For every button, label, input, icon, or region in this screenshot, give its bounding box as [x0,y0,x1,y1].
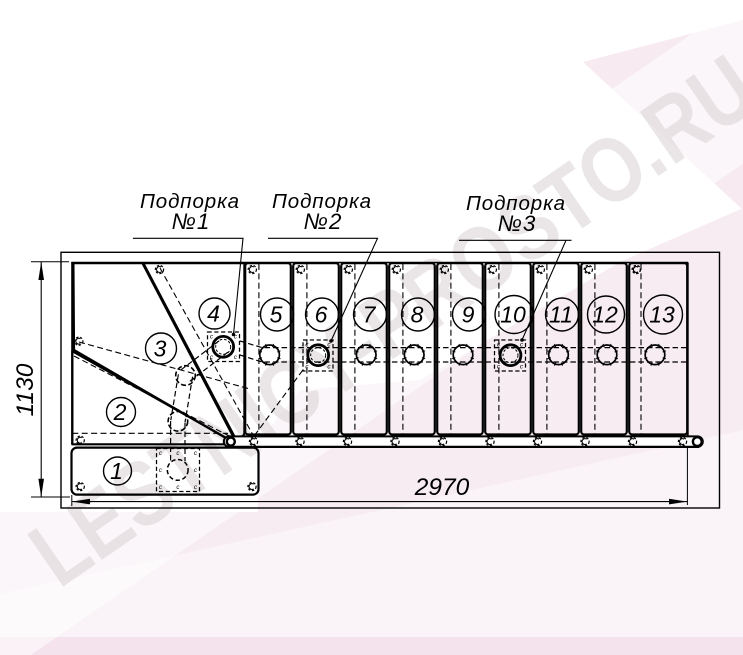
svg-text:11: 11 [549,302,573,328]
svg-text:13: 13 [649,302,675,328]
svg-text:12: 12 [592,302,618,328]
svg-text:6: 6 [315,302,328,328]
svg-text:№3: №3 [498,211,537,236]
svg-text:c: c [210,334,214,341]
svg-text:№2: №2 [304,209,343,234]
svg-text:2: 2 [113,399,127,425]
svg-text:1: 1 [110,458,123,484]
svg-text:8: 8 [411,302,424,328]
svg-text:4: 4 [207,301,220,327]
svg-text:7: 7 [363,302,377,328]
svg-text:3: 3 [154,336,167,362]
svg-text:5: 5 [270,302,283,328]
svg-text:c: c [210,354,214,361]
svg-text:2970: 2970 [414,474,470,501]
svg-text:№1: №1 [172,209,211,234]
svg-text:10: 10 [500,302,526,328]
svg-text:9: 9 [462,302,475,328]
svg-text:1130: 1130 [12,363,39,416]
